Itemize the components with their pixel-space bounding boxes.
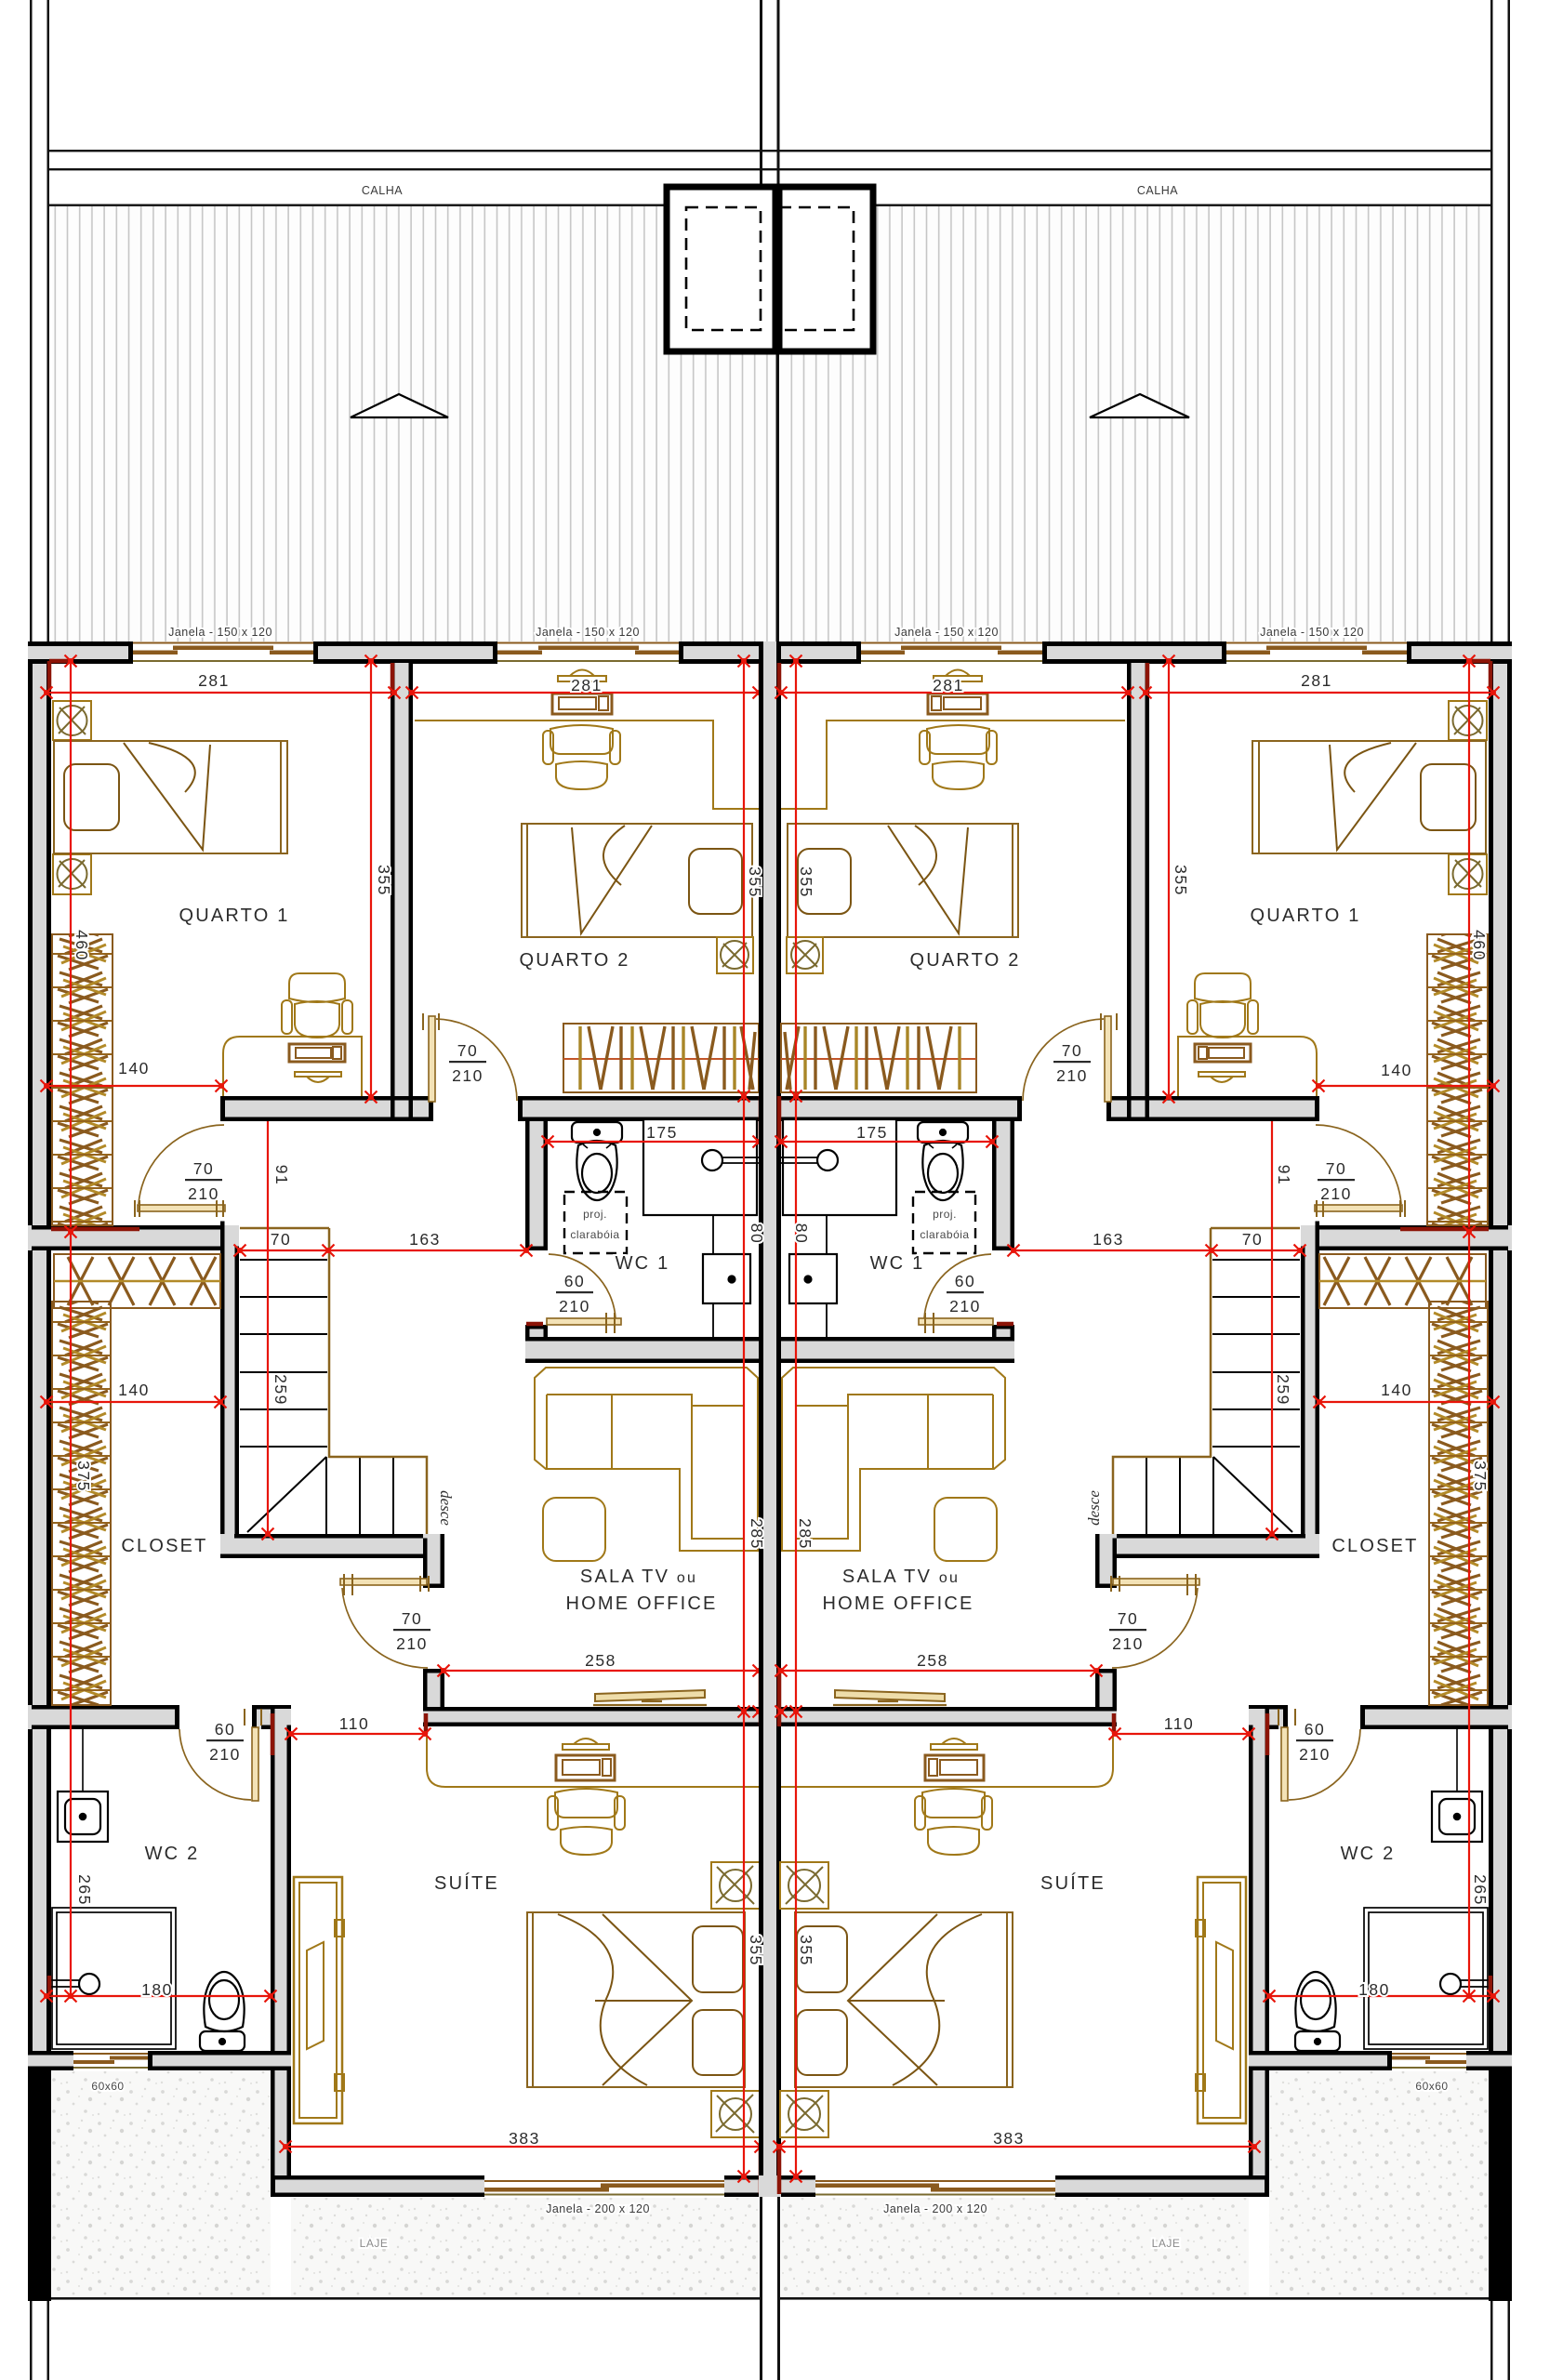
svg-text:355: 355: [747, 1935, 765, 1966]
svg-text:60: 60: [955, 1272, 975, 1290]
svg-text:281: 281: [571, 676, 603, 694]
svg-text:60x60: 60x60: [91, 2080, 124, 2093]
svg-text:WC 2: WC 2: [1341, 1844, 1396, 1864]
svg-text:60: 60: [215, 1720, 235, 1739]
svg-text:SALA TV ou: SALA TV ou: [842, 1567, 960, 1587]
svg-text:140: 140: [118, 1381, 150, 1399]
svg-text:175: 175: [646, 1123, 678, 1142]
svg-text:Janela - 150 x 120: Janela - 150 x 120: [536, 626, 640, 639]
svg-text:355: 355: [797, 1935, 815, 1966]
svg-text:desce: desce: [437, 1490, 455, 1526]
svg-text:110: 110: [1164, 1714, 1194, 1733]
svg-text:LAJE: LAJE: [1152, 2237, 1181, 2250]
svg-text:140: 140: [1381, 1061, 1412, 1079]
svg-text:163: 163: [409, 1230, 441, 1249]
svg-text:Janela - 150 x 120: Janela - 150 x 120: [894, 626, 999, 639]
svg-text:80: 80: [748, 1223, 766, 1244]
svg-text:Janela - 200 x 120: Janela - 200 x 120: [883, 2202, 987, 2215]
svg-text:175: 175: [856, 1123, 888, 1142]
svg-text:180: 180: [1358, 1980, 1390, 1999]
svg-text:259: 259: [1274, 1374, 1292, 1406]
svg-text:210: 210: [1299, 1745, 1331, 1764]
svg-text:91: 91: [272, 1165, 291, 1185]
svg-text:110: 110: [339, 1714, 369, 1733]
svg-text:140: 140: [118, 1059, 150, 1078]
svg-text:SUÍTE: SUÍTE: [1040, 1872, 1106, 1894]
svg-text:HOME OFFICE: HOME OFFICE: [822, 1593, 974, 1614]
svg-text:desce: desce: [1085, 1490, 1103, 1526]
svg-text:281: 281: [198, 671, 230, 690]
svg-text:CALHA: CALHA: [362, 184, 403, 197]
svg-text:clarabóia: clarabóia: [570, 1228, 619, 1241]
svg-text:375: 375: [74, 1461, 93, 1492]
svg-text:210: 210: [559, 1297, 590, 1316]
svg-text:460: 460: [73, 930, 91, 961]
svg-text:355: 355: [375, 865, 393, 896]
svg-text:70: 70: [457, 1041, 478, 1060]
svg-text:210: 210: [452, 1066, 483, 1085]
svg-text:70: 70: [193, 1159, 214, 1178]
svg-text:70: 70: [1326, 1159, 1346, 1178]
svg-text:70: 70: [1118, 1609, 1138, 1628]
svg-text:210: 210: [396, 1634, 428, 1653]
svg-text:383: 383: [509, 2129, 540, 2148]
svg-text:265: 265: [75, 1874, 94, 1906]
svg-text:LAJE: LAJE: [360, 2237, 389, 2250]
svg-text:Janela - 150 x 120: Janela - 150 x 120: [1260, 626, 1364, 639]
svg-text:180: 180: [141, 1980, 173, 1999]
svg-text:70: 70: [402, 1609, 422, 1628]
svg-text:CALHA: CALHA: [1137, 184, 1178, 197]
svg-text:CLOSET: CLOSET: [1331, 1536, 1418, 1556]
svg-text:460: 460: [1470, 930, 1489, 961]
svg-text:383: 383: [993, 2129, 1025, 2148]
svg-text:QUARTO 1: QUARTO 1: [179, 906, 289, 926]
svg-text:355: 355: [1172, 865, 1190, 896]
svg-text:259: 259: [272, 1374, 290, 1406]
svg-text:QUARTO 1: QUARTO 1: [1250, 906, 1360, 926]
svg-text:QUARTO 2: QUARTO 2: [519, 950, 629, 971]
svg-text:140: 140: [1381, 1381, 1412, 1399]
svg-text:281: 281: [1301, 671, 1332, 690]
svg-text:Janela - 150 x 120: Janela - 150 x 120: [168, 626, 272, 639]
svg-text:355: 355: [797, 866, 815, 898]
svg-text:285: 285: [796, 1518, 815, 1550]
svg-text:CLOSET: CLOSET: [121, 1536, 207, 1556]
svg-text:258: 258: [917, 1651, 948, 1670]
svg-text:70: 70: [1062, 1041, 1082, 1060]
svg-text:proj.: proj.: [933, 1208, 957, 1221]
svg-text:210: 210: [1112, 1634, 1144, 1653]
svg-text:281: 281: [933, 676, 964, 694]
svg-text:210: 210: [949, 1297, 981, 1316]
svg-text:80: 80: [792, 1223, 811, 1244]
svg-text:HOME OFFICE: HOME OFFICE: [565, 1593, 717, 1614]
svg-text:Janela - 200 x 120: Janela - 200 x 120: [546, 2202, 650, 2215]
svg-text:210: 210: [209, 1745, 241, 1764]
svg-text:210: 210: [1056, 1066, 1088, 1085]
svg-text:91: 91: [1275, 1165, 1293, 1185]
svg-text:60: 60: [1305, 1720, 1325, 1739]
svg-text:210: 210: [1320, 1184, 1352, 1203]
svg-text:QUARTO 2: QUARTO 2: [909, 950, 1020, 971]
svg-text:clarabóia: clarabóia: [920, 1228, 969, 1241]
svg-text:WC 1: WC 1: [616, 1253, 670, 1274]
svg-text:70: 70: [1242, 1230, 1263, 1249]
svg-text:60: 60: [564, 1272, 585, 1290]
svg-text:285: 285: [748, 1518, 766, 1550]
svg-text:163: 163: [1093, 1230, 1124, 1249]
svg-text:proj.: proj.: [583, 1208, 607, 1221]
svg-text:WC 1: WC 1: [870, 1253, 925, 1274]
svg-text:375: 375: [1471, 1461, 1490, 1492]
svg-text:265: 265: [1471, 1874, 1490, 1906]
svg-text:SALA TV ou: SALA TV ou: [580, 1567, 697, 1587]
svg-text:258: 258: [585, 1651, 616, 1670]
svg-text:60x60: 60x60: [1415, 2080, 1448, 2093]
svg-text:WC 2: WC 2: [145, 1844, 200, 1864]
svg-text:70: 70: [271, 1230, 291, 1249]
svg-text:210: 210: [188, 1184, 219, 1203]
svg-text:355: 355: [746, 866, 764, 898]
svg-text:SUÍTE: SUÍTE: [434, 1872, 499, 1894]
